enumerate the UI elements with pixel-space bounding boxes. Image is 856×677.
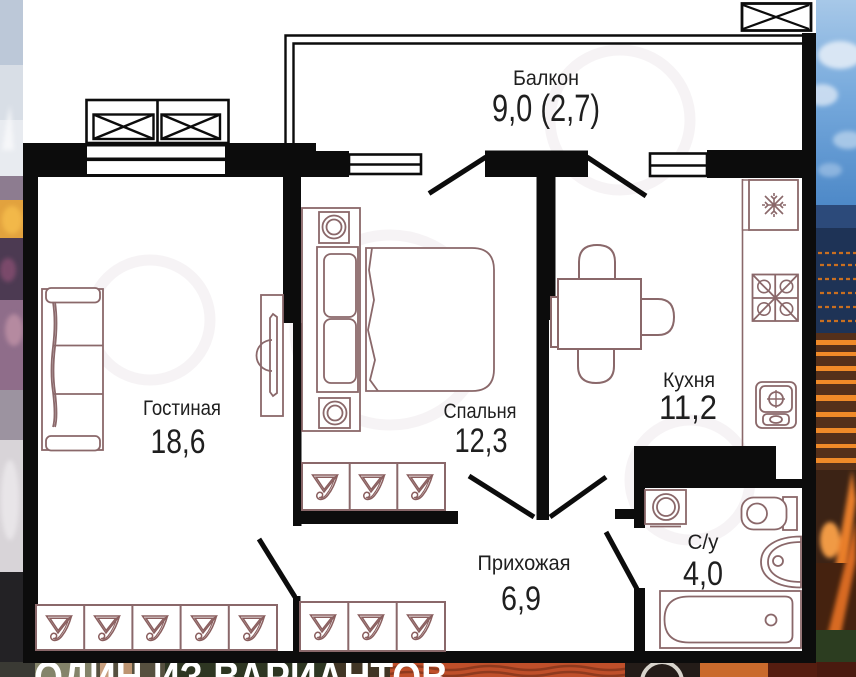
svg-text:Прихожая: Прихожая (478, 552, 571, 575)
svg-text:Спальня: Спальня (444, 400, 517, 423)
svg-text:9,0 (2,7): 9,0 (2,7) (492, 88, 600, 130)
svg-text:Гостиная: Гостиная (143, 397, 221, 420)
svg-text:12,3: 12,3 (455, 422, 508, 460)
svg-text:4,0: 4,0 (683, 555, 723, 593)
svg-text:Балкон: Балкон (513, 67, 579, 90)
svg-text:С/у: С/у (688, 531, 719, 554)
svg-text:11,2: 11,2 (659, 389, 717, 427)
svg-text:6,9: 6,9 (501, 580, 541, 618)
svg-text:18,6: 18,6 (151, 423, 206, 461)
